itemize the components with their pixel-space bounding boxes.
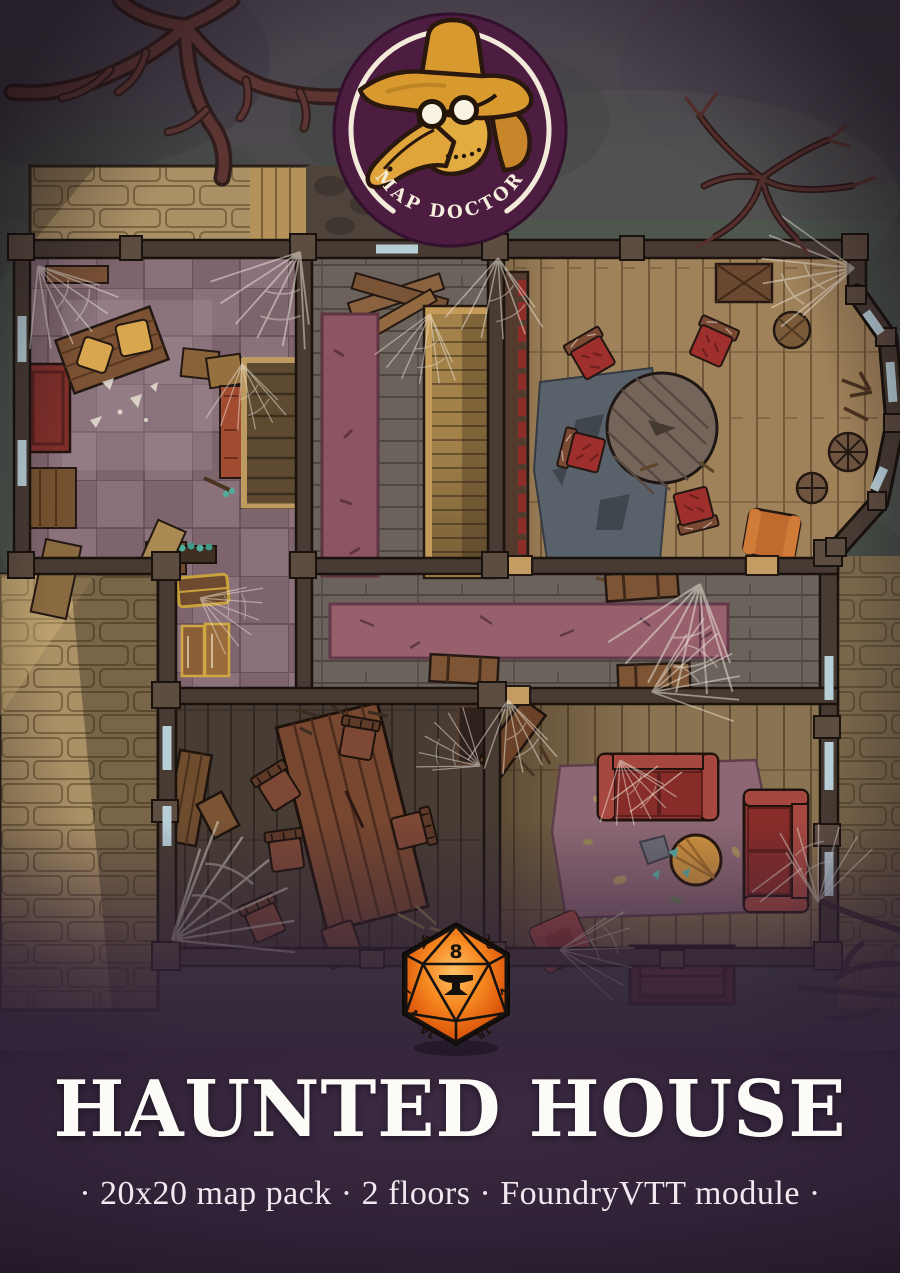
- d20-number-top: 8: [449, 941, 462, 963]
- title-block: HAUNTED HOUSE · 20x20 map pack · 2 floor…: [0, 1072, 900, 1213]
- page-subtitle: · 20x20 map pack · 2 floors · FoundryVTT…: [0, 1175, 900, 1213]
- page-title: HAUNTED HOUSE: [0, 1071, 900, 1149]
- brand-badge: MAP DOCTOR: [334, 14, 566, 246]
- product-cover: 8 20 2 18 14 7 16 4: [0, 0, 900, 1273]
